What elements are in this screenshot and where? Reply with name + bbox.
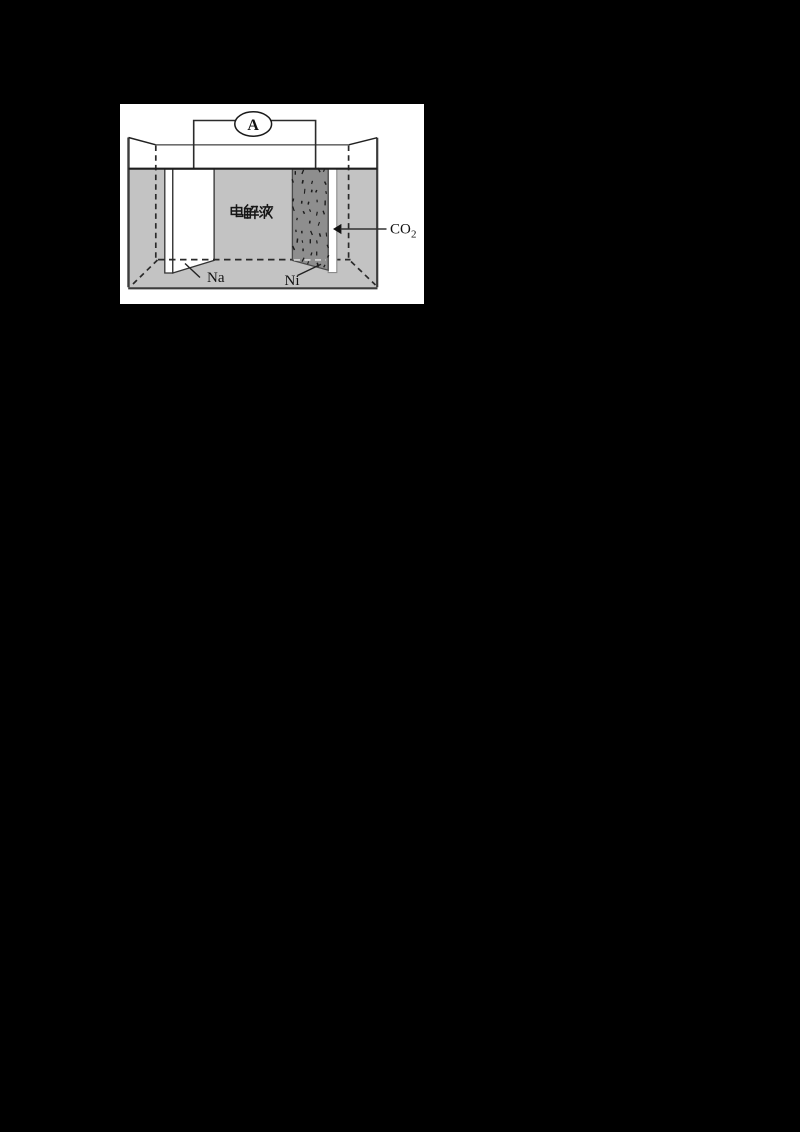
svg-text:Ni: Ni	[285, 273, 300, 289]
svg-text:A: A	[247, 117, 259, 134]
svg-text:Na: Na	[207, 270, 225, 286]
svg-text:2: 2	[411, 229, 417, 241]
svg-text:CO: CO	[390, 221, 411, 237]
